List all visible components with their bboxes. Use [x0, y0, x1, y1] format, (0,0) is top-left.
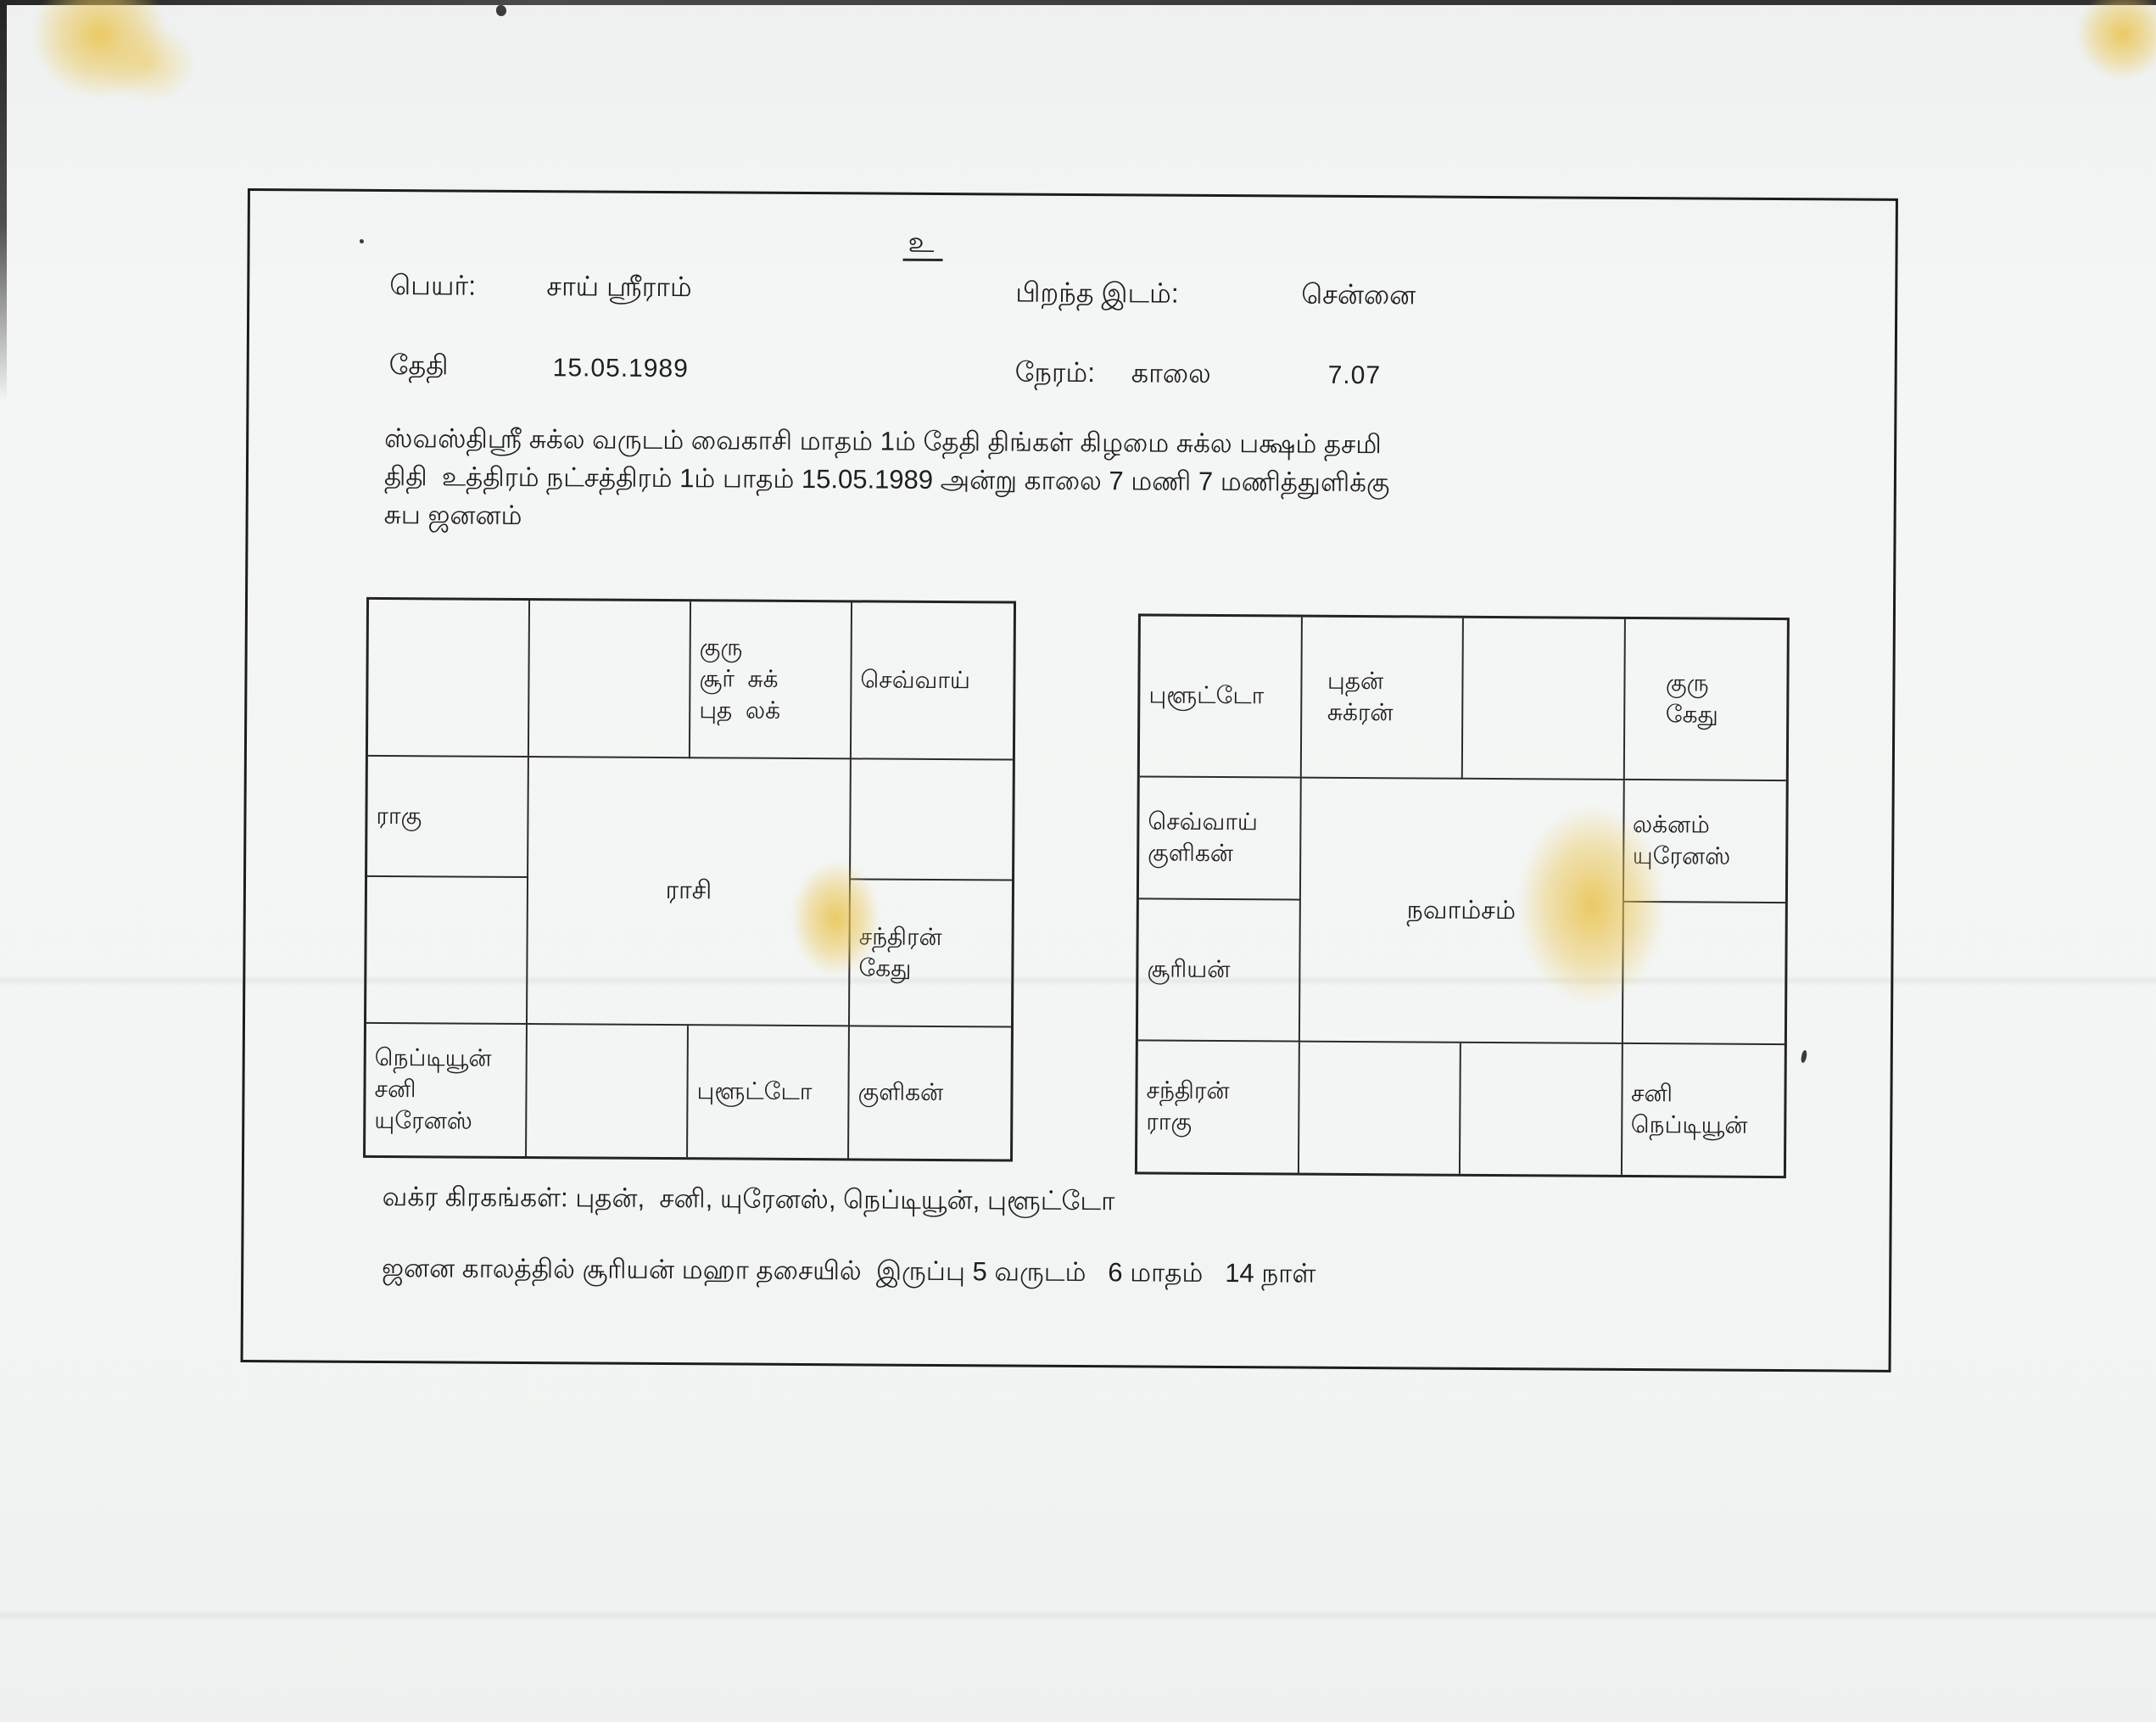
nav-cell-r0c2	[1463, 618, 1626, 780]
navamsam-center-stain	[1516, 805, 1666, 1005]
nav-cell-r0c1: புதன் சுக்ரன்	[1301, 618, 1464, 780]
navamsam-title: நவாம்சம்	[1406, 893, 1516, 927]
intro-paragraph: ஸ்வஸ்திஸ்ரீ சுக்ல வருடம் வைகாசி மாதம் 1ம…	[384, 419, 1895, 543]
paper-crease-2	[0, 1610, 2156, 1620]
name-label: பெயர்:	[389, 270, 476, 305]
nav-cell-r0c3: குரு கேது	[1624, 619, 1787, 781]
document-sheet: உ பெயர்: சாய் ஸ்ரீராம் பிறந்த இடம்: சென்…	[241, 188, 1898, 1373]
rasi-cell-r1c3	[851, 759, 1013, 881]
time-value: 7.07	[1328, 361, 1382, 390]
rasi-chart: குரு சூர் சுக் புத லக் செவ்வாய் ராகு ராச…	[363, 597, 1016, 1162]
rasi-cell-r0c2: குரு சூர் சுக் புத லக்	[690, 601, 852, 759]
nav-cell-r0c0: புளூட்டோ	[1140, 616, 1303, 778]
scan-left-edge	[0, 3, 7, 402]
dasa-balance-line: ஜனன காலத்தில் சூரியன் மஹா தசையில் இருப்ப…	[382, 1249, 1315, 1293]
navamsam-center-cell: நவாம்சம்	[1299, 779, 1624, 1044]
rasi-cell-r2c0	[366, 877, 528, 1024]
rasi-center-cell: ராசி	[528, 758, 852, 1026]
navamsam-chart: புளூட்டோ புதன் சுக்ரன் குரு கேது செவ்வாய…	[1135, 613, 1790, 1178]
stain-top-left-2	[102, 25, 195, 102]
rasi-cell-r3c2: புளூட்டோ	[688, 1026, 850, 1158]
time-label: நேரம்:	[1015, 357, 1096, 393]
scan-top-edge	[0, 0, 2156, 5]
rasi-cell-r3c0: நெப்டியூன் சனி யுரேனஸ்	[366, 1024, 528, 1156]
name-value: சாய் ஸ்ரீராம்	[546, 271, 692, 306]
nav-cell-r2c0: சூரியன்	[1138, 899, 1301, 1042]
rasi-cell-r1c0: ராகு	[367, 757, 529, 879]
retrograde-line: வக்ர கிரகங்கள்: புதன், சனி, யுரேனஸ், நெப…	[383, 1177, 1115, 1220]
birthplace-label: பிறந்த இடம்:	[1015, 277, 1179, 313]
intro-line-3: சுப ஜனனம்	[384, 495, 1894, 543]
stain-top-right	[2076, 0, 2156, 80]
nav-cell-r3c0: சந்திரன் ராகு	[1137, 1041, 1299, 1172]
nav-cell-r3c2	[1461, 1043, 1623, 1175]
rasi-cell-r0c1	[529, 601, 691, 758]
date-value: 15.05.1989	[553, 354, 689, 383]
rasi-title: ராசி	[665, 874, 712, 908]
auspicious-mark: உ	[902, 227, 942, 262]
ink-speck-top	[496, 5, 506, 16]
date-label: தேதி	[389, 349, 449, 384]
nav-cell-r3c3: சனி நெப்டியூன்	[1622, 1044, 1784, 1176]
rasi-cell-r0c0	[368, 600, 530, 758]
rasi-center-stain	[790, 861, 880, 976]
rasi-cell-r3c3: குளிகன்	[849, 1026, 1011, 1159]
nav-cell-r1c0: செவ்வாய் குளிகன்	[1139, 777, 1301, 900]
time-meridiem: காலை	[1131, 357, 1211, 393]
birthplace-value: சென்னை	[1301, 279, 1416, 315]
nav-cell-r3c1	[1299, 1043, 1461, 1174]
rasi-cell-r3c1	[527, 1025, 689, 1157]
rasi-cell-r0c3: செவ்வாய்	[852, 602, 1014, 760]
scanned-horoscope-page: { "document": { "auspicious_mark": "உ", …	[0, 0, 2156, 1722]
